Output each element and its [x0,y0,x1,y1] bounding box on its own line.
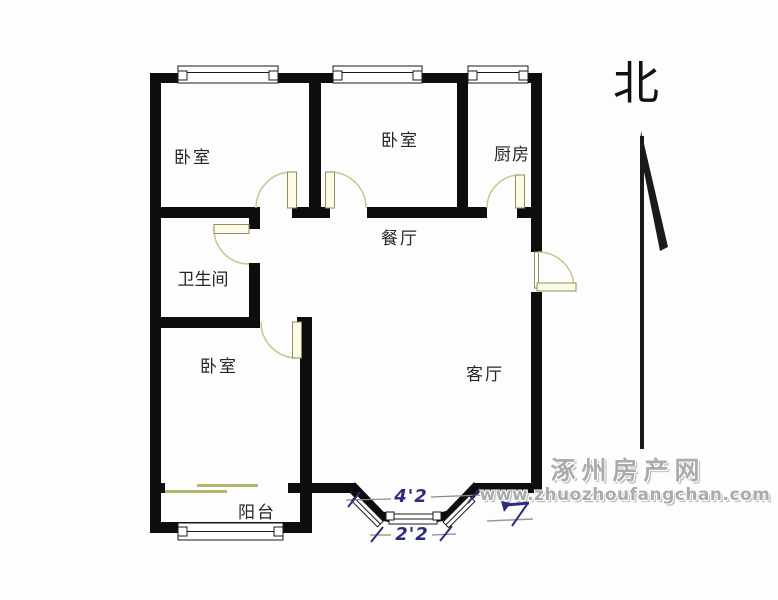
window-kitchen [468,66,528,83]
north-label: 北 [613,60,659,106]
wall [531,73,542,252]
wall [531,292,542,493]
door-leaf [293,322,302,358]
doors [165,172,576,492]
window-bay-center [386,512,441,524]
room-label-kitchen: 厨房 [494,146,530,165]
door-leaf [288,172,297,208]
door-bedroom-southwest [261,322,302,358]
floor-plan: 卧室 卧室 厨房 餐厅 卫生间 卧室 客厅 阳台 北 4'2 2'2 涿州房产网… [0,0,778,600]
watermark-site-url: www.zhuozhoufangchan.com [480,487,771,504]
wall [367,207,487,218]
wall [150,207,258,218]
room-label-balcony: 阳台 [238,504,276,523]
door-leaf [537,283,576,291]
room-label-bedroom-north: 卧室 [381,132,419,151]
wall [309,83,321,218]
door-swing-arc [261,322,297,358]
floor-plan-drawing [0,0,778,600]
window-bedroom-north [333,66,422,83]
wall [292,207,330,218]
room-label-dining-room: 餐厅 [381,230,419,249]
room-label-living-room: 客厅 [466,366,504,385]
door-swing-arc [330,172,366,208]
door-leaf [214,225,249,234]
window-balcony [178,523,283,540]
door-leaf [326,172,335,208]
door-swing-arc [256,172,292,208]
room-label-bathroom: 卫生间 [178,271,229,290]
door-bathroom [214,225,249,265]
door-bedroom-northwest [256,172,297,208]
dimension-value-outer: 4'2 [394,488,428,506]
wall [517,207,542,218]
room-label-bedroom-northwest: 卧室 [174,149,212,168]
wall [249,207,260,229]
dimension-value-inner: 2'2 [395,526,429,544]
wall [150,73,161,533]
wall [457,83,468,218]
door-entrance [535,252,577,291]
watermark-site-name: 涿州房产网 [550,458,705,483]
room-label-bedroom-southwest: 卧室 [200,358,238,377]
north-arrow-icon [640,131,668,449]
walls [150,73,542,533]
wall [150,483,165,493]
wall [150,317,260,328]
door-kitchen [487,175,525,208]
door-leaf [516,175,525,208]
wall [288,483,355,493]
window-symbols [178,66,528,540]
door-swing-arc [214,229,249,264]
window-bedroom-northwest [178,66,278,83]
dimension-tick [440,526,452,541]
door-bedroom-north [326,172,367,208]
sliding-door-balcony [165,486,258,492]
